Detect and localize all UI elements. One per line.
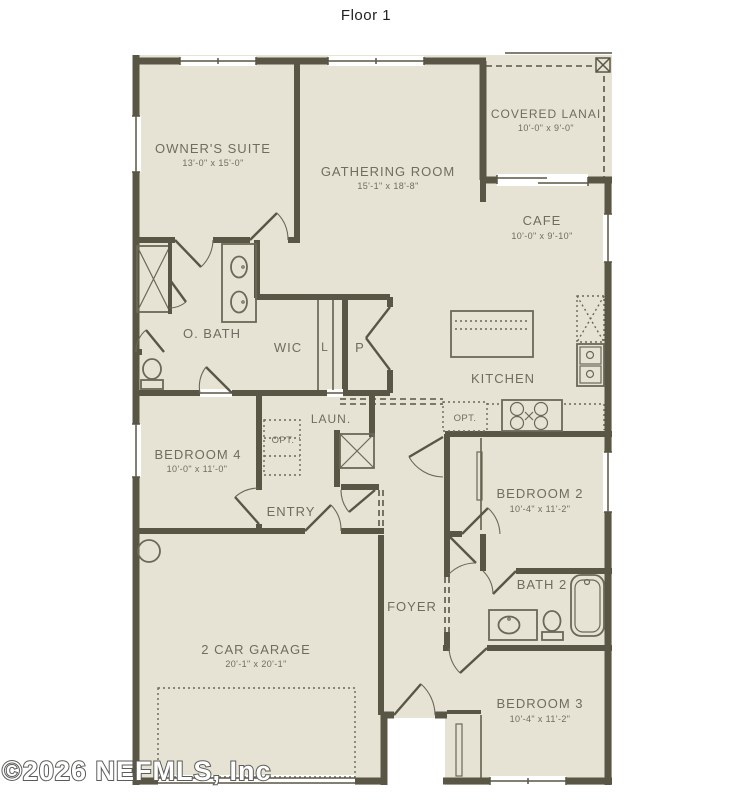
floor-plan-canvas: Floor 1 OWNER'S SUITE 13'-0" x 15'-0" GA…	[0, 0, 736, 805]
entry-label: ENTRY	[267, 504, 316, 519]
foyer-label: FOYER	[387, 599, 437, 614]
covered-lanai-dims: 10'-0" x 9'-0"	[518, 123, 574, 133]
owners-bath-label: O. BATH	[183, 326, 241, 341]
bedroom4-dims: 10'-0" x 11'-0"	[167, 464, 228, 474]
linen-label: L	[321, 340, 329, 354]
garage-label: 2 CAR GARAGE	[201, 642, 311, 657]
covered-lanai-label: COVERED LANAI	[491, 107, 601, 121]
owners-suite-label: OWNER'S SUITE	[155, 141, 271, 156]
garage-dims: 20'-1" x 20'-1"	[225, 659, 286, 669]
bedroom3-dims: 10'-4" x 11'-2"	[510, 714, 571, 724]
floor-plan-page: Floor 1 OWNER'S SUITE 13'-0" x 15'-0" GA…	[0, 0, 736, 805]
opt-laundry-label: OPT.	[272, 435, 295, 446]
bedroom4-label: BEDROOM 4	[154, 447, 241, 462]
bedroom2-dims: 10'-4" x 11'-2"	[510, 504, 571, 514]
wic-label: WIC	[274, 340, 302, 355]
window-gathering-top	[328, 56, 424, 66]
gathering-room-dims: 15'-1" x 18'-8"	[357, 181, 418, 191]
opt-kitchen-label: OPT.	[454, 413, 477, 424]
watermark: ©2026 NEFMLS, Inc	[2, 756, 271, 786]
cafe-dims: 10'-0" x 9'-10"	[511, 231, 572, 241]
bath2-label: BATH 2	[517, 577, 568, 592]
pantry-label: P	[355, 340, 365, 355]
cafe-label: CAFE	[523, 213, 562, 228]
front-porch-notch	[387, 718, 445, 785]
gathering-room-label: GATHERING ROOM	[321, 164, 455, 179]
window-cafe-right	[603, 214, 613, 262]
window-bedroom2-right	[603, 452, 613, 512]
page-title: Floor 1	[341, 7, 391, 24]
window-bedroom3-bottom	[490, 776, 566, 786]
bedroom2-label: BEDROOM 2	[496, 486, 583, 501]
window-bedroom4-left	[131, 424, 141, 477]
window-owners-suite-top	[180, 56, 256, 66]
opening-laundry-wall	[327, 389, 343, 397]
opening-obath-wall	[200, 389, 232, 397]
sliding-door-lanai	[497, 174, 588, 186]
kitchen-label: KITCHEN	[471, 371, 535, 386]
laundry-label: LAUN.	[311, 412, 351, 426]
window-owners-suite-left	[131, 116, 141, 172]
owners-suite-dims: 13'-0" x 15'-0"	[182, 158, 243, 168]
bedroom3-label: BEDROOM 3	[496, 696, 583, 711]
